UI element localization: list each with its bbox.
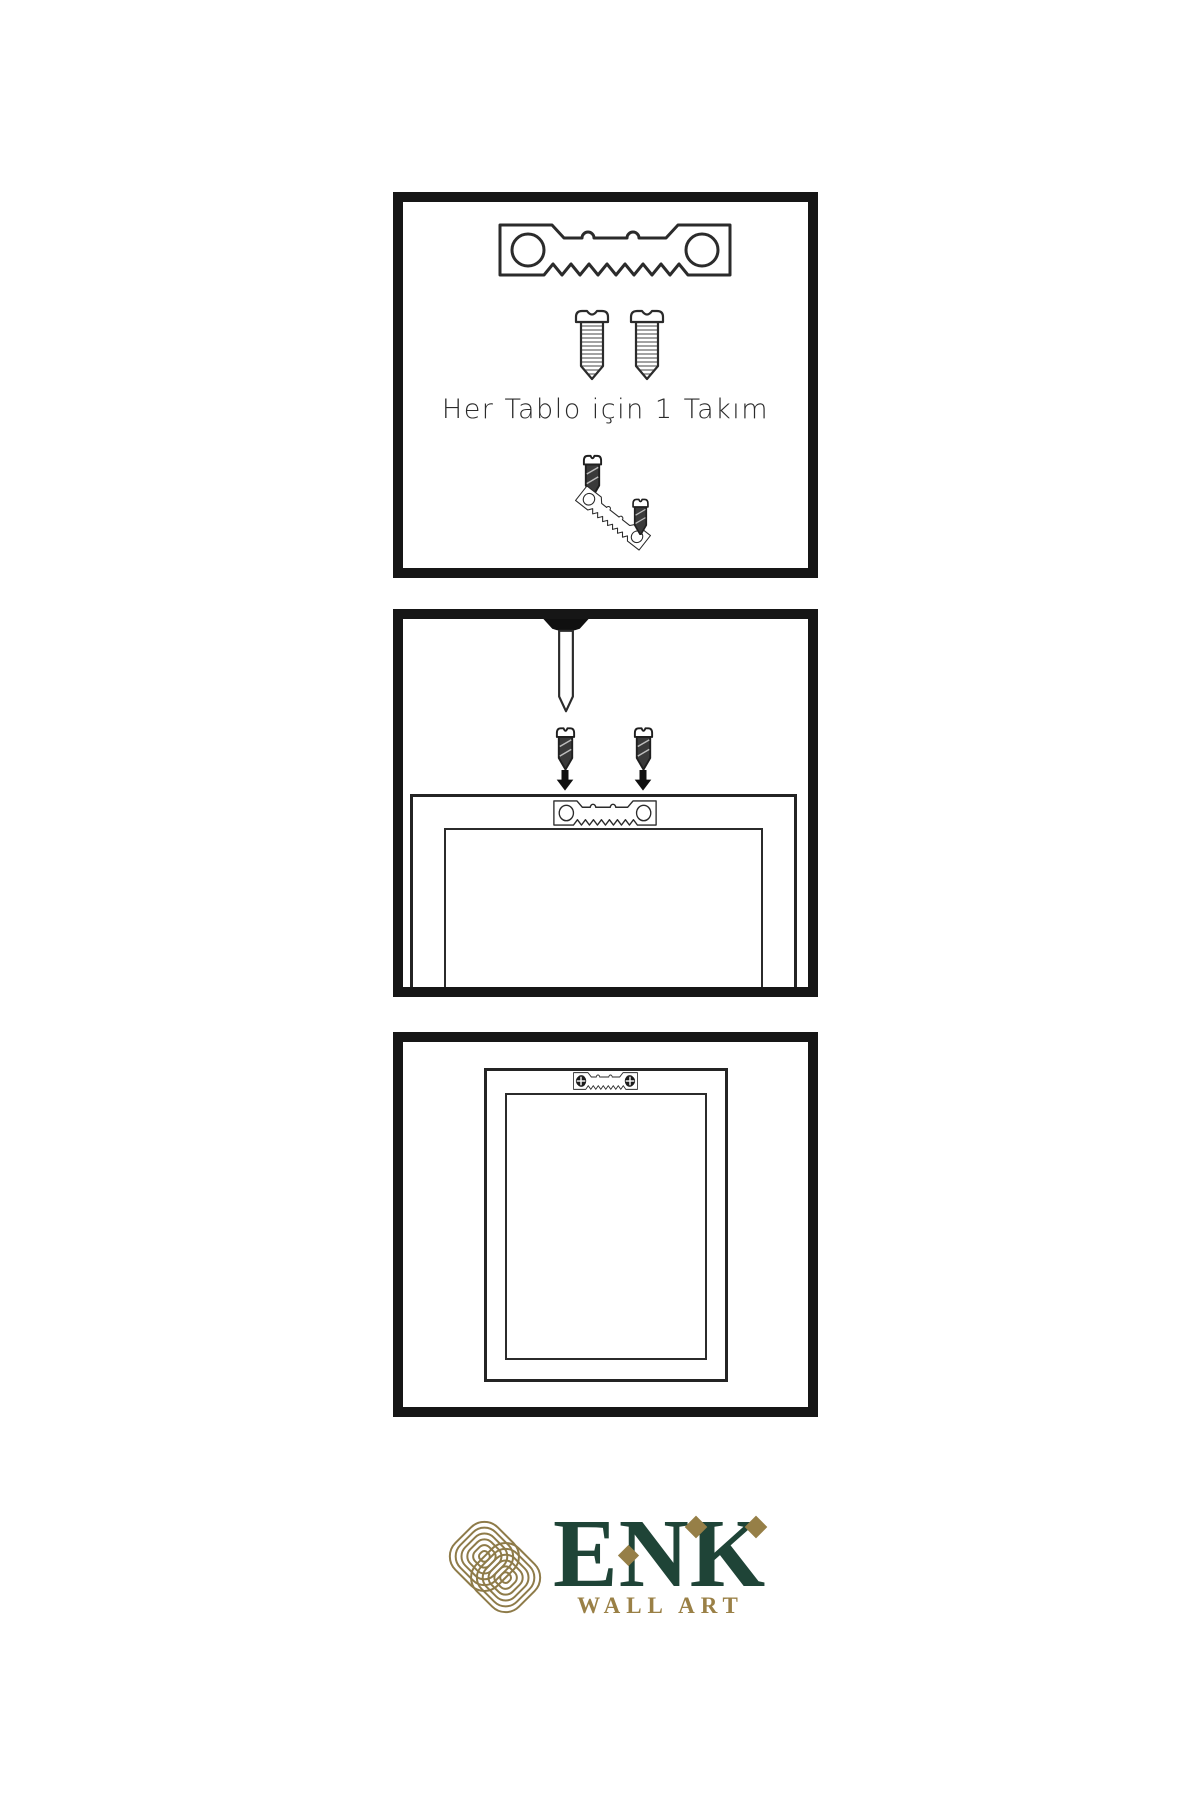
dark-screw-icon: [632, 724, 655, 771]
instruction-panel-attach-hanger: [393, 609, 818, 997]
screw-icon: [628, 308, 666, 382]
frame-front-inner-edge: [505, 1093, 707, 1360]
wall-nail-icon: [543, 619, 589, 723]
phillips-screw-head-icon: [575, 1075, 587, 1087]
phillips-screw-head-icon: [624, 1075, 636, 1087]
dark-screw-icon: [630, 497, 651, 535]
instruction-panel-hardware-kit: Her Tablo için 1 Takım: [393, 192, 818, 578]
brand-name: ENK: [553, 1505, 768, 1602]
kit-caption: Her Tablo için 1 Takım: [403, 394, 808, 425]
arrow-down-icon: [633, 770, 653, 791]
interlaced-knot-icon: [430, 1500, 560, 1634]
screw-icon: [573, 308, 611, 382]
instruction-panel-hang-frame: [393, 1032, 818, 1417]
dark-screw-icon: [554, 724, 577, 771]
brand-subtitle: WALL ART: [553, 1593, 768, 1619]
sawtooth-hanger-icon: [553, 800, 657, 826]
frame-back-inner-edge: [444, 828, 763, 994]
sawtooth-hanger-icon: [498, 223, 732, 277]
arrow-down-icon: [555, 770, 575, 791]
